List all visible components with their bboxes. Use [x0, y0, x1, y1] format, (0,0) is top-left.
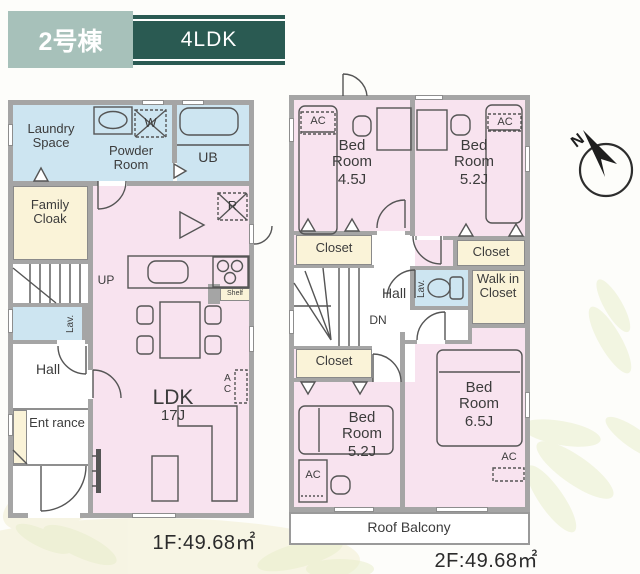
room-label-closet-mid: Closet [296, 354, 372, 368]
room-label-bedroom-ne-size: 5.2J [445, 172, 503, 188]
layout-badge: 4LDK [133, 15, 285, 65]
floor2-area-label: 2F:49.68㎡ [382, 544, 538, 573]
room-label-bedroom-nw: Bed Room [322, 138, 382, 170]
label-ac-sw: AC [300, 470, 326, 482]
dining-set-icon [137, 302, 221, 358]
kitchen-counter-icon [128, 256, 249, 288]
room-label-bedroom-se-size: 6.5J [447, 414, 511, 430]
door-arc [343, 74, 445, 382]
room-label-lav-1f: Lav. [66, 308, 77, 340]
room-label-bedroom-nw-size: 4.5J [322, 172, 382, 188]
toilet-icon [428, 277, 463, 299]
stairs-icon [294, 268, 359, 346]
label-dn: DN [363, 314, 393, 327]
room-label-hall-2f: Hall [373, 286, 415, 301]
badge-stripe [133, 19, 285, 21]
room-label-ub: UB [190, 150, 226, 165]
bathtub-icon [177, 108, 249, 145]
label-shelf: Shelf [220, 290, 250, 298]
room-label-laundry: Laundry Space [14, 122, 88, 150]
floor-plan-page: 2号棟 4LDK N [0, 0, 640, 574]
tv-icon [180, 212, 204, 238]
room-label-bedroom-ne: Bed Room [445, 138, 503, 170]
room-label-walk-in-closet: Walk in Closet [473, 272, 523, 300]
room-label-entrance: Ent rance [28, 416, 86, 430]
room-label-hall-1f: Hall [18, 362, 78, 377]
room-label-lav-2f: Lav. [417, 274, 428, 304]
stairs-icon [13, 264, 80, 303]
floor2-plan: Bed Room 4.5J Bed Room 5.2J Closet Close… [289, 88, 530, 548]
badge-stripe [133, 59, 285, 61]
floor1-plan: Laundry Space Powder Room UB Family Cloa… [8, 100, 254, 518]
table-icon [152, 456, 178, 501]
building-badge: 2号棟 [8, 11, 133, 68]
sink-icon [94, 107, 132, 134]
room-label-ldk-size: 17J [146, 408, 200, 424]
layout-badge-label: 4LDK [181, 28, 238, 52]
ac-unit-icon [235, 370, 247, 403]
label-washer: W [135, 116, 166, 130]
room-label-bedroom-se: Bed Room [447, 380, 511, 412]
room-label-closet-ne: Closet [457, 245, 525, 259]
room-label-roof-balcony: Roof Balcony [309, 520, 509, 535]
label-fridge: R [220, 199, 245, 213]
room-label-powder: Powder Room [102, 144, 160, 172]
room-label-bedroom-sw: Bed Room [331, 410, 393, 442]
room-label-bedroom-sw-size: 5.2J [331, 444, 393, 460]
building-badge-label: 2号棟 [39, 22, 103, 58]
label-ac-ne: AC [489, 117, 521, 129]
floor1-area-label: 1F:49.68㎡ [100, 526, 256, 555]
room-label-family-cloak: Family Cloak [18, 198, 82, 226]
label-up: UP [92, 274, 120, 287]
entrance-diagonal [13, 450, 27, 464]
label-ac-se: AC [495, 452, 523, 464]
label-ac-1f: AC [222, 374, 233, 395]
room-label-closet-nw: Closet [296, 241, 372, 255]
label-ac-nw: AC [302, 116, 334, 128]
tv-board-icon [92, 449, 101, 493]
compass-icon: N [568, 115, 640, 210]
